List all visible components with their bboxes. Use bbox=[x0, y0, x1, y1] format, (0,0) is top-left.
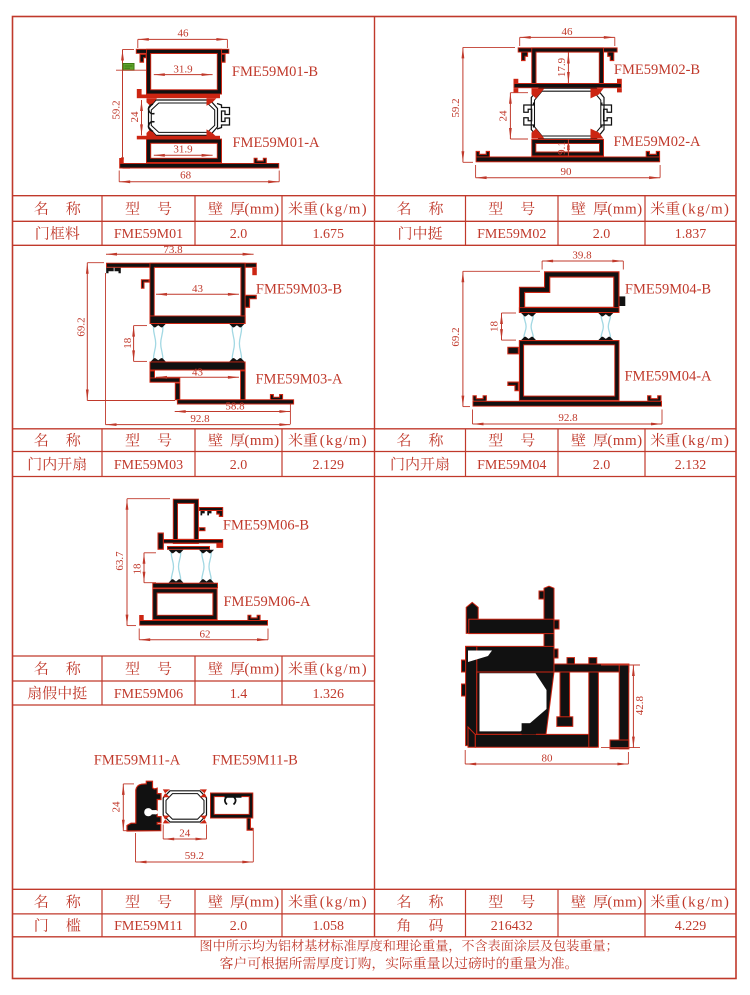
svg-text:43: 43 bbox=[192, 283, 204, 295]
svg-text:2.0: 2.0 bbox=[593, 458, 611, 473]
svg-text:FME59M03: FME59M03 bbox=[114, 458, 183, 473]
svg-text:63.7: 63.7 bbox=[114, 551, 126, 571]
svg-text:(kg/m): (kg/m) bbox=[320, 202, 368, 218]
svg-text:2.0: 2.0 bbox=[593, 227, 611, 242]
svg-text:FME59M04-A: FME59M04-A bbox=[624, 369, 712, 385]
svg-text:FME59M06-B: FME59M06-B bbox=[223, 518, 309, 534]
svg-text:FME59M11: FME59M11 bbox=[114, 919, 183, 934]
svg-text:(kg/m): (kg/m) bbox=[320, 895, 368, 911]
svg-text:9.1: 9.1 bbox=[556, 141, 568, 155]
svg-text:39.8: 39.8 bbox=[572, 250, 592, 262]
svg-text:FME59M03-B: FME59M03-B bbox=[256, 281, 342, 297]
svg-text:2.0: 2.0 bbox=[230, 458, 248, 473]
svg-text:FME59M01-B: FME59M01-B bbox=[232, 64, 318, 80]
svg-text:69.2: 69.2 bbox=[76, 317, 88, 336]
svg-text:90: 90 bbox=[561, 166, 573, 178]
svg-text:59.2: 59.2 bbox=[111, 100, 123, 119]
svg-text:68: 68 bbox=[180, 170, 192, 182]
svg-text:(mm): (mm) bbox=[244, 433, 279, 449]
svg-text:2.132: 2.132 bbox=[675, 458, 707, 473]
svg-text:FME59M01-A: FME59M01-A bbox=[232, 135, 320, 151]
svg-text:18: 18 bbox=[122, 337, 134, 349]
svg-text:(kg/m): (kg/m) bbox=[320, 433, 368, 449]
svg-text:17.9: 17.9 bbox=[556, 57, 568, 77]
svg-text:42.8: 42.8 bbox=[634, 695, 646, 715]
svg-text:2.129: 2.129 bbox=[313, 458, 345, 473]
svg-text:92.8: 92.8 bbox=[190, 413, 210, 425]
svg-text:FME59M06: FME59M06 bbox=[114, 687, 183, 702]
svg-text:(mm): (mm) bbox=[607, 202, 642, 218]
svg-text:FME59M04-B: FME59M04-B bbox=[625, 282, 711, 298]
svg-text:59.2: 59.2 bbox=[450, 98, 462, 117]
svg-text:31.9: 31.9 bbox=[173, 144, 193, 156]
svg-text:(kg/m): (kg/m) bbox=[320, 662, 368, 678]
svg-text:1.675: 1.675 bbox=[313, 227, 345, 242]
svg-text:24: 24 bbox=[498, 110, 510, 122]
svg-text:(kg/m): (kg/m) bbox=[682, 433, 730, 449]
svg-text:46: 46 bbox=[562, 26, 574, 38]
svg-text:4.229: 4.229 bbox=[675, 919, 707, 934]
svg-text:1.837: 1.837 bbox=[675, 227, 707, 242]
svg-text:(mm): (mm) bbox=[607, 895, 642, 911]
svg-text:1.058: 1.058 bbox=[313, 919, 345, 934]
svg-text:1.4: 1.4 bbox=[230, 687, 248, 702]
svg-text:(kg/m): (kg/m) bbox=[682, 202, 730, 218]
svg-text:69.2: 69.2 bbox=[450, 327, 462, 346]
svg-text:(mm): (mm) bbox=[244, 202, 279, 218]
svg-text:18: 18 bbox=[489, 321, 501, 333]
svg-text:FME59M11-B: FME59M11-B bbox=[212, 752, 298, 768]
svg-text:1.326: 1.326 bbox=[313, 687, 345, 702]
svg-text:(mm): (mm) bbox=[244, 895, 279, 911]
svg-text:FME59M06-A: FME59M06-A bbox=[223, 594, 311, 610]
svg-text:FME59M02-B: FME59M02-B bbox=[614, 62, 700, 78]
svg-text:46: 46 bbox=[178, 28, 190, 40]
svg-text:43: 43 bbox=[192, 367, 204, 379]
svg-text:24: 24 bbox=[179, 828, 191, 840]
svg-text:2.0: 2.0 bbox=[230, 227, 248, 242]
svg-text:216432: 216432 bbox=[491, 919, 533, 934]
svg-text:FME59M04: FME59M04 bbox=[477, 458, 546, 473]
svg-text:92.8: 92.8 bbox=[558, 412, 578, 424]
svg-text:(kg/m): (kg/m) bbox=[682, 895, 730, 911]
svg-text:24: 24 bbox=[129, 111, 141, 123]
svg-text:2.0: 2.0 bbox=[230, 919, 248, 934]
svg-text:62: 62 bbox=[200, 628, 211, 640]
svg-text:FME59M02: FME59M02 bbox=[477, 227, 546, 242]
svg-text:58.8: 58.8 bbox=[225, 401, 245, 413]
svg-text:80: 80 bbox=[542, 752, 554, 764]
svg-text:31.9: 31.9 bbox=[173, 63, 193, 75]
svg-text:(mm): (mm) bbox=[607, 433, 642, 449]
svg-text:24: 24 bbox=[111, 801, 123, 813]
svg-text:FME59M01: FME59M01 bbox=[114, 227, 183, 242]
svg-text:59.2: 59.2 bbox=[185, 850, 204, 862]
svg-text:FME59M02-A: FME59M02-A bbox=[613, 134, 701, 150]
svg-text:(mm): (mm) bbox=[244, 662, 279, 678]
svg-text:FME59M11-A: FME59M11-A bbox=[94, 752, 181, 768]
svg-text:18: 18 bbox=[131, 563, 143, 575]
svg-text:FME59M03-A: FME59M03-A bbox=[255, 372, 343, 388]
